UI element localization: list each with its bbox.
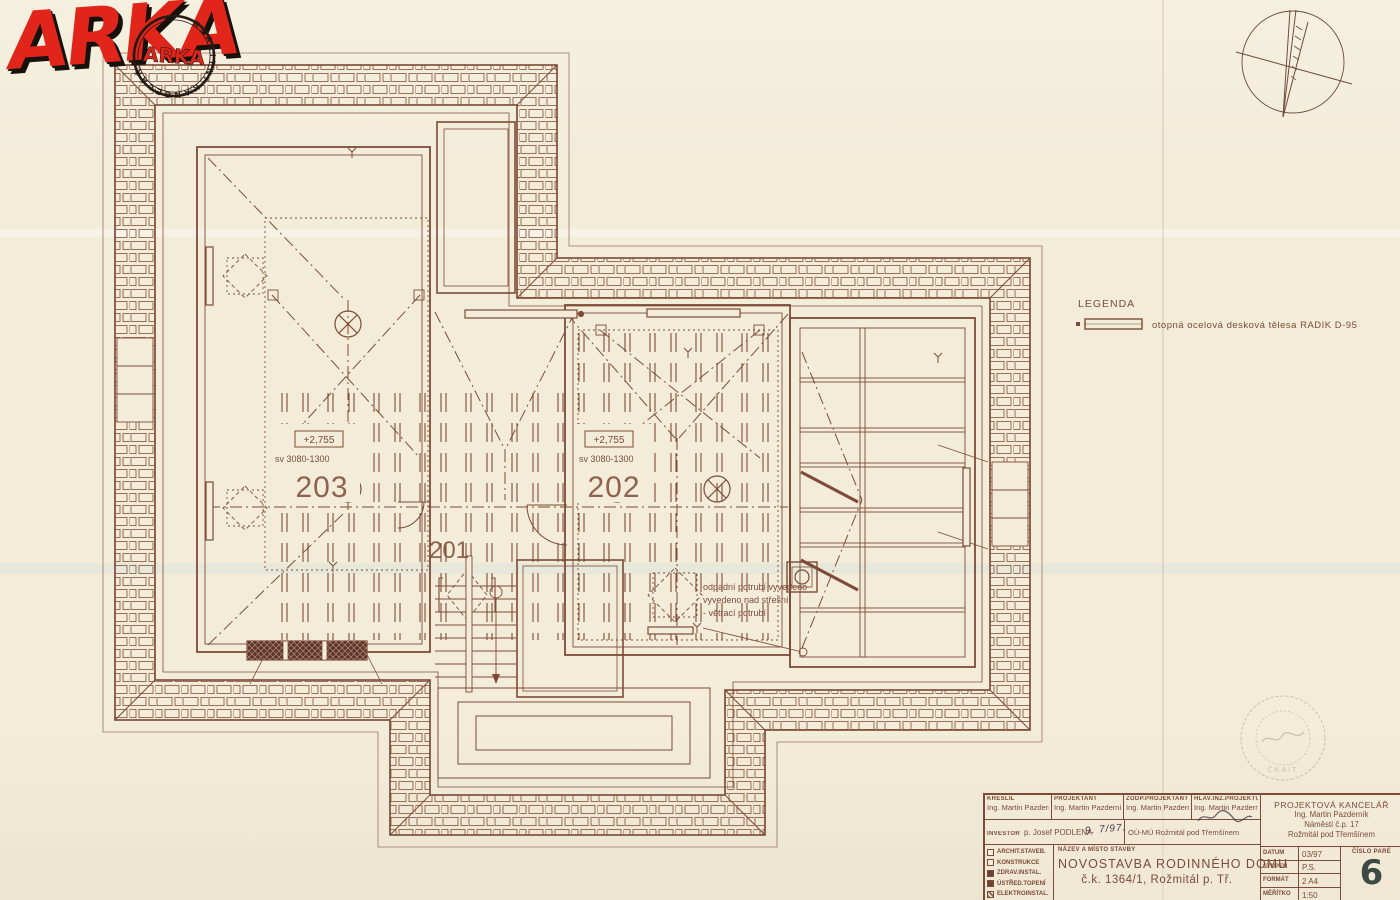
discipline-row: ZDRAV.INSTAL. [987, 868, 1053, 879]
role-value: Ing. Martin Pazderník [1126, 803, 1189, 812]
meta-value: 2 A4 [1299, 874, 1340, 887]
office-line: Ing. Martin Pazderník [1261, 810, 1400, 820]
legend: LEGENDA otopná ocelová desková tělesa RA… [1076, 298, 1357, 331]
role-value: Ing. Martin Pazderník [1054, 803, 1121, 812]
discipline-checkbox [987, 859, 994, 866]
annotation-line-1: odpadní potrubí vyvedeno [703, 582, 807, 592]
meta-label: MĚŘÍTKO [1261, 888, 1299, 900]
room-203-number: 203 [295, 471, 348, 504]
discipline-row: ARCHIT.STAVEB. [987, 847, 1053, 858]
discipline-label: ZDRAV.INSTAL. [997, 870, 1041, 876]
discipline-row: ÚSTŘED.TOPENÍ [987, 879, 1053, 890]
copy-number-value: 6 [1341, 855, 1400, 891]
discipline-checkbox [987, 870, 994, 877]
title-block-investor-row: INVESTOR p. Josef PODLENA 9. 7/97. OÚ-MÚ… [985, 820, 1260, 845]
discipline-row: KONSTRUKCE [987, 858, 1053, 869]
legend-title: LEGENDA [1078, 298, 1135, 310]
discipline-checkbox [987, 849, 994, 856]
role-label: KRESLIL [987, 796, 1049, 803]
discipline-row: ELEKTROINSTAL. [987, 889, 1053, 900]
room-202-elevation: +2,755 [594, 435, 625, 446]
role-cell-projektant: PROJEKTANT Ing. Martin Pazderník [1052, 795, 1124, 819]
copy-number-cell: ČÍSLO PARÉ 6 [1340, 847, 1400, 900]
north-compass-icon [1236, 10, 1352, 117]
floor-plan-drawing: +2,755 sv 3080-1300 203 +2,755 sv 3080-1… [0, 0, 1400, 900]
terrace-steps [438, 688, 710, 778]
room-203-clearance: sv 3080-1300 [275, 454, 330, 464]
chimney-shaft [437, 122, 515, 293]
project-name: NOVOSTAVBA RODINNÉHO DOMU [1058, 857, 1256, 871]
meta-label: DATUM [1261, 847, 1299, 860]
role-cell-hlav-inz: HLAV.INŽ.PROJEKTU Ing. Martin Pazderník [1192, 795, 1260, 819]
room-202-number: 202 [587, 471, 640, 504]
room-201-number: 201 [429, 537, 469, 564]
meta-table: DATUM 03/97 STUPEŇ P.S. FORMÁT 2 A4 MĚŘÍ… [1260, 847, 1340, 900]
investor-label: INVESTOR [987, 831, 1020, 838]
building-plan [103, 53, 1042, 847]
room-202-clearance: sv 3080-1300 [579, 454, 634, 464]
office-line: PROJEKTOVÁ KANCELÁŘ [1261, 800, 1400, 810]
authorization-stamp-text: ČKAIT [1268, 765, 1299, 774]
meta-label: FORMÁT [1261, 874, 1299, 887]
office-line: Náměstí č.p. 17 [1261, 820, 1400, 830]
arka-stamp-center-text: ARKA [142, 42, 206, 70]
meta-row: STUPEŇ P.S. [1261, 861, 1340, 875]
project-detail: č.k. 1364/1, Rožmitál p. Tř. [1058, 874, 1256, 886]
meta-row: FORMÁT 2 A4 [1261, 874, 1340, 888]
meta-row: DATUM 03/97 [1261, 847, 1340, 861]
meta-value: 03/97 [1299, 847, 1340, 860]
role-value: Ing. Martin Pazderník [987, 803, 1049, 812]
investor-handwriting: 9. 7/97. [1085, 822, 1127, 837]
role-cell-kreslil: KRESLIL Ing. Martin Pazderník [985, 795, 1052, 819]
discipline-label: ÚSTŘED.TOPENÍ [997, 881, 1046, 887]
investor-value: p. Josef PODLENA [1024, 828, 1092, 837]
meta-value: 1:50 [1299, 888, 1340, 900]
project-name-cell: NÁZEV A MÍSTO STAVBY NOVOSTAVBA RODINNÉH… [1054, 845, 1260, 900]
discipline-label: ARCHIT.STAVEB. [997, 849, 1046, 855]
discipline-checkbox [987, 891, 994, 898]
meta-value: P.S. [1299, 861, 1340, 874]
discipline-label: KONSTRUKCE [997, 860, 1039, 866]
annotation-line-3: - větrací potrubí [703, 608, 767, 618]
project-name-label: NÁZEV A MÍSTO STAVBY [1058, 847, 1256, 853]
title-block: KRESLIL Ing. Martin Pazderník PROJEKTANT… [983, 793, 1400, 900]
meta-label: STUPEŇ [1261, 861, 1299, 874]
design-office-cell: PROJEKTOVÁ KANCELÁŘ Ing. Martin Pazderní… [1260, 795, 1400, 847]
role-cell-zodp-projektant: ZODP.PROJEKTANT Ing. Martin Pazderník [1124, 795, 1192, 819]
annotation-line-2: vyvedeno nad střešní [703, 595, 789, 605]
right-wing-walls [790, 318, 975, 667]
office-line: Rožmitál pod Třemšínem [1261, 830, 1400, 840]
drawing-sheet: +2,755 sv 3080-1300 203 +2,755 sv 3080-1… [0, 0, 1400, 900]
authorization-stamp: ČKAIT [1241, 696, 1325, 780]
role-label: PROJEKTANT [1054, 796, 1121, 803]
role-label: ZODP.PROJEKTANT [1126, 796, 1189, 803]
vent-grille [247, 641, 382, 684]
arka-logo: ARKA REALITNÍ KANCELÁŘ ARKA [6, 2, 266, 122]
wall-window-openings [117, 338, 1028, 546]
room-203-elevation: +2,755 [304, 435, 335, 446]
right-wing-beams [800, 328, 988, 657]
meta-row: MĚŘÍTKO 1:50 [1261, 888, 1340, 900]
municipality-cell: OÚ-MÚ Rožmitál pod Třemšínem [1124, 820, 1260, 845]
discipline-checkbox [987, 880, 994, 887]
legend-item-label: otopná ocelová desková tělesa RADIK D-95 [1152, 320, 1357, 331]
discipline-list: ARCHIT.STAVEB. KONSTRUKCE ZDRAV.INSTAL. … [985, 845, 1054, 900]
title-block-roles-row: KRESLIL Ing. Martin Pazderník PROJEKTANT… [985, 795, 1260, 820]
discipline-label: ELEKTROINSTAL. [997, 891, 1049, 897]
role-label: HLAV.INŽ.PROJEKTU [1194, 796, 1258, 803]
